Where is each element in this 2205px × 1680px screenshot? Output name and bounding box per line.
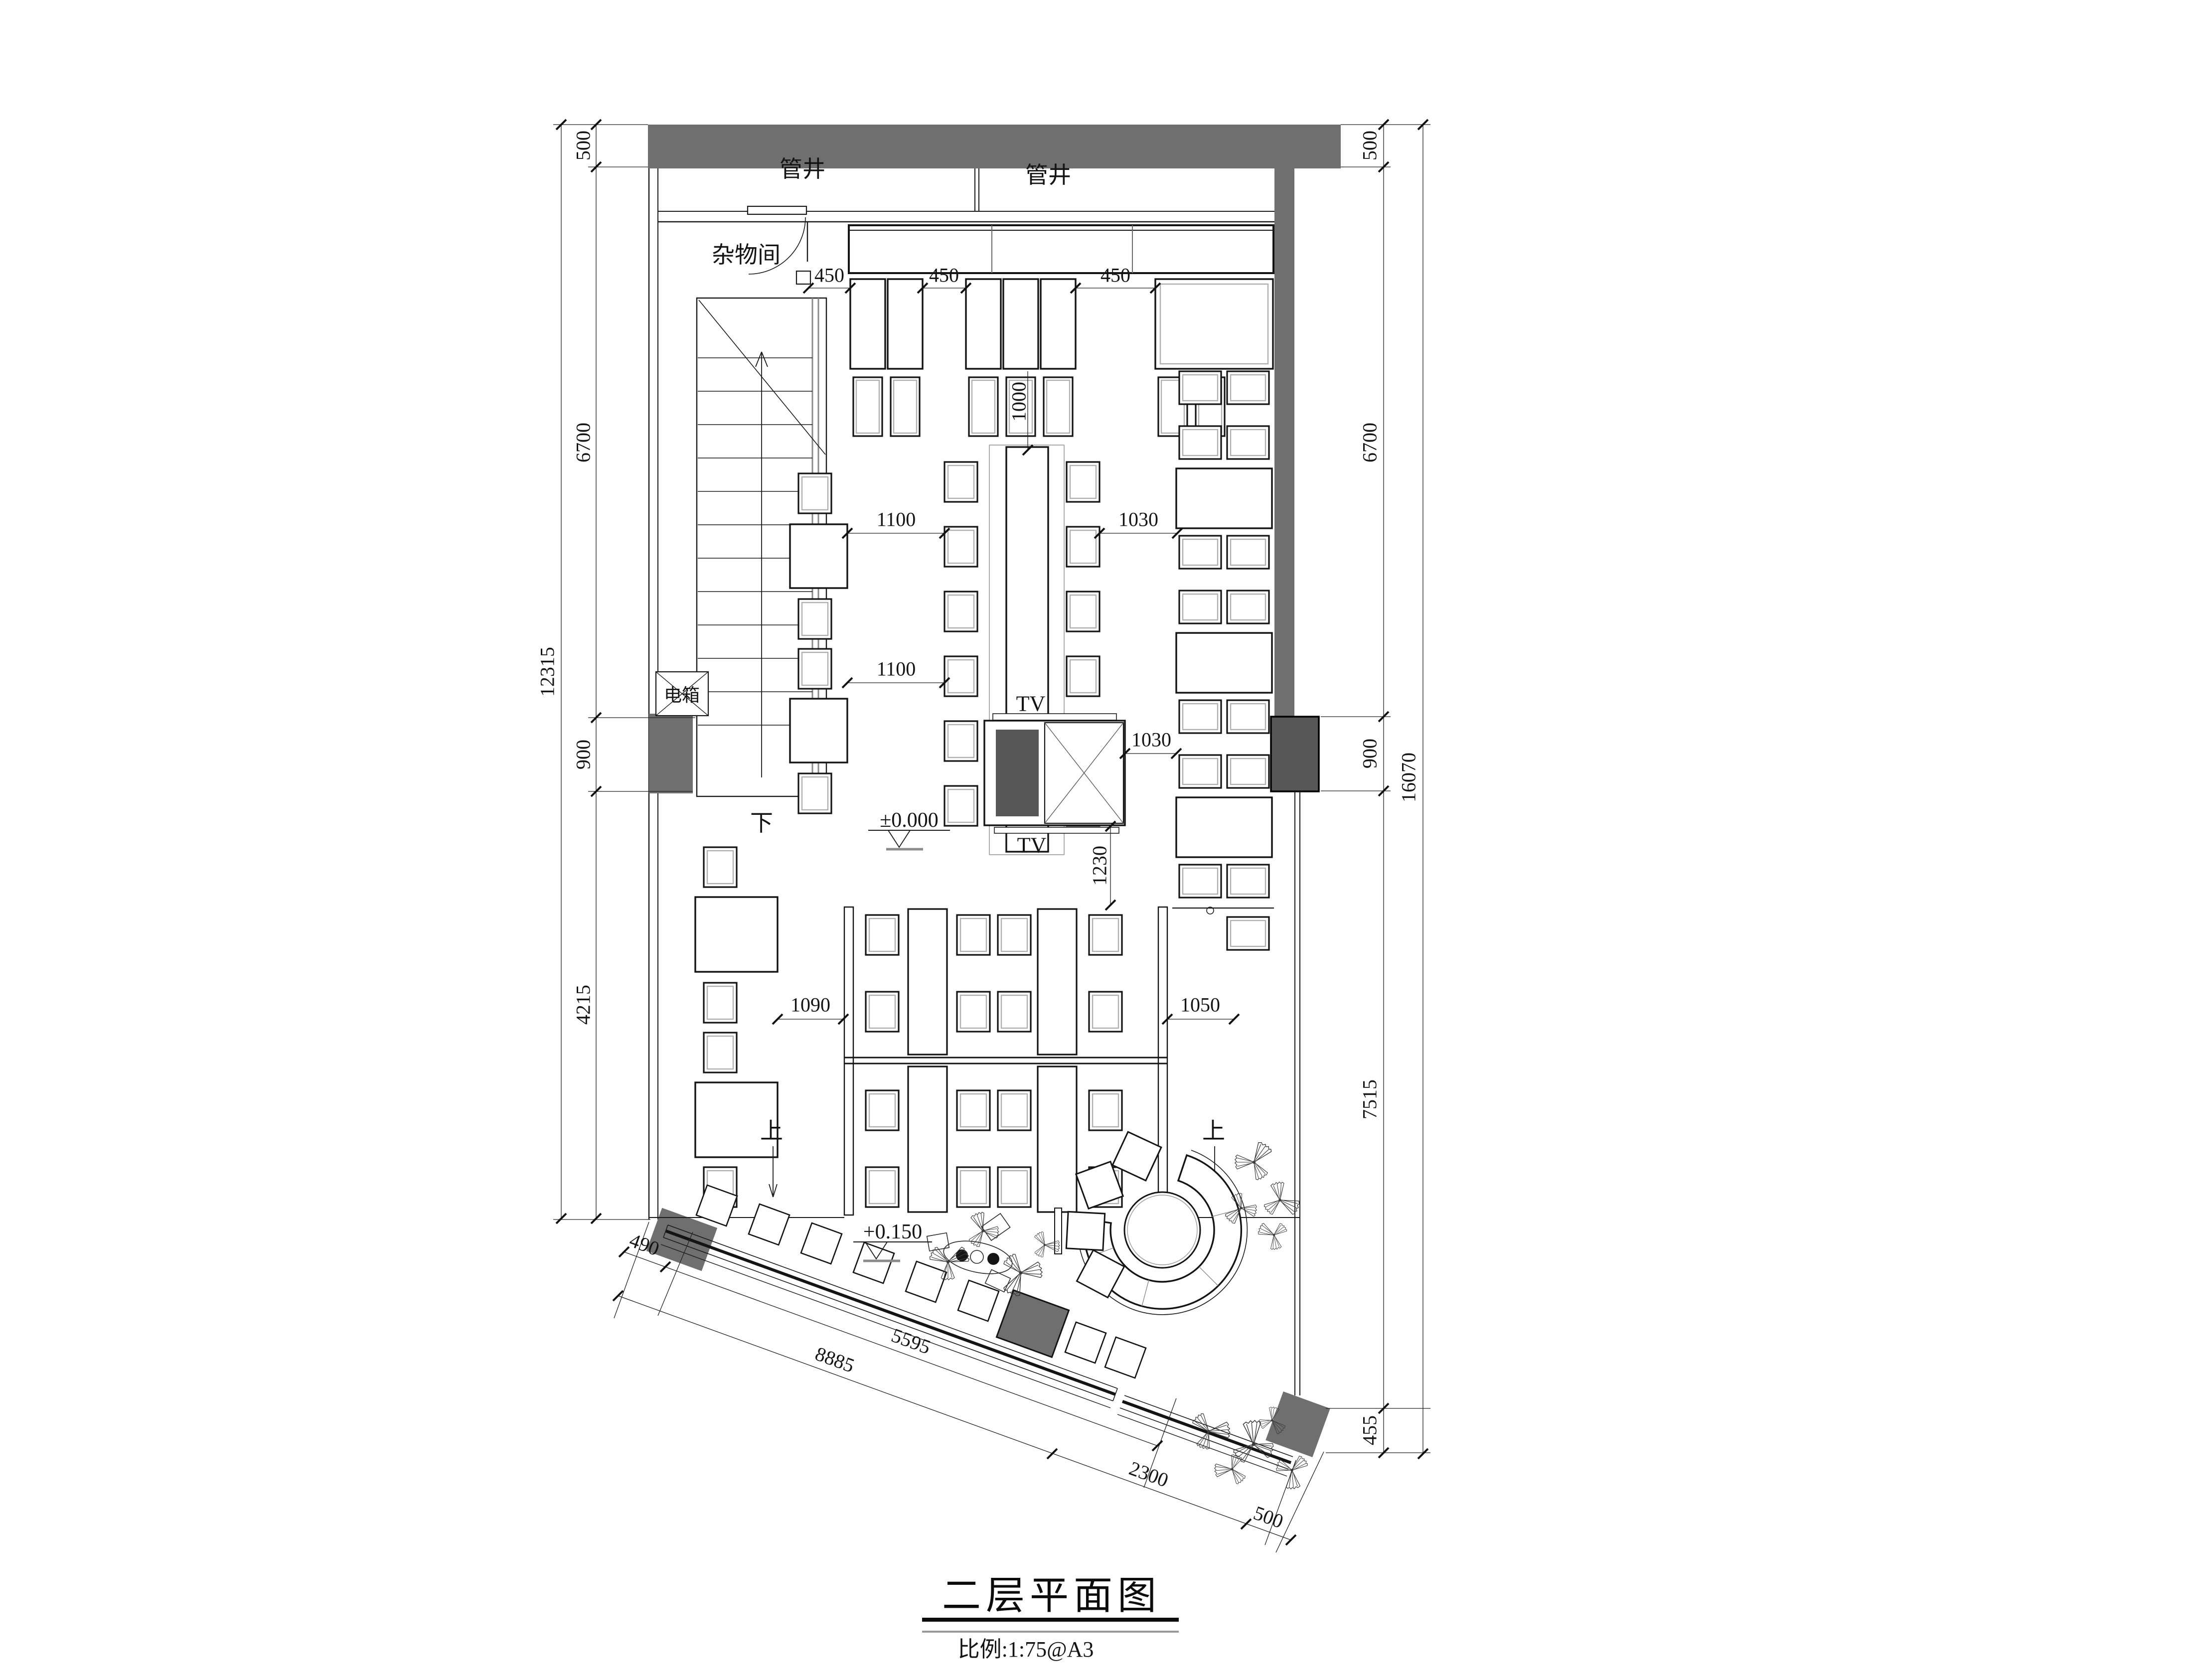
dim-left-900: 900 bbox=[572, 740, 595, 769]
dim-1090: 1090 bbox=[790, 993, 830, 1017]
dim-450-3: 450 bbox=[1101, 264, 1130, 287]
dim-left-6700: 6700 bbox=[572, 423, 595, 462]
dim-1100-1: 1100 bbox=[877, 508, 916, 531]
dim-1100-2: 1100 bbox=[877, 657, 916, 681]
tv-label-bottom: TV bbox=[1017, 833, 1047, 858]
drawing-scale-note: 比例:1:75@A3 bbox=[958, 1631, 1094, 1663]
stair-up-right-label: 上 bbox=[1202, 1113, 1225, 1146]
dim-left-500: 500 bbox=[572, 131, 595, 160]
floor-plan-drawing bbox=[0, 0, 2205, 1680]
storage-room-label: 杂物间 bbox=[712, 237, 781, 270]
dim-right-900: 900 bbox=[1358, 739, 1382, 768]
drawing-title: 二层平面图 bbox=[942, 1564, 1161, 1620]
dim-left-4215: 4215 bbox=[572, 985, 595, 1025]
dim-right-overall-16070: 16070 bbox=[1397, 753, 1420, 802]
pipe-shaft-label-1: 管井 bbox=[780, 151, 825, 184]
dim-1030-1: 1030 bbox=[1118, 508, 1158, 531]
pipe-shaft-label-2: 管井 bbox=[1025, 157, 1071, 190]
dim-right-6700: 6700 bbox=[1358, 423, 1382, 462]
dim-1230: 1230 bbox=[1088, 846, 1111, 886]
tv-column-block bbox=[984, 714, 1125, 833]
level-terrace: +0.150 bbox=[863, 1220, 922, 1244]
dim-right-7515: 7515 bbox=[1358, 1079, 1382, 1119]
dim-450-2: 450 bbox=[929, 264, 959, 287]
dim-left-overall-12315: 12315 bbox=[536, 647, 559, 697]
dim-right-455: 455 bbox=[1358, 1415, 1382, 1445]
dim-450-1: 450 bbox=[814, 264, 844, 287]
electric-box-label: 电箱 bbox=[664, 681, 700, 707]
dim-right-500: 500 bbox=[1358, 131, 1382, 160]
title-underline bbox=[922, 1620, 1179, 1632]
stair-up-left-label: 上 bbox=[760, 1113, 783, 1146]
level-main-floor: ±0.000 bbox=[880, 808, 939, 832]
dim-1030-2: 1030 bbox=[1131, 728, 1171, 752]
right-seating bbox=[1172, 371, 1274, 950]
tv-label-top: TV bbox=[1016, 691, 1046, 717]
dim-1050: 1050 bbox=[1180, 993, 1220, 1017]
dim-1000: 1000 bbox=[1007, 382, 1031, 422]
floor-plan-sheet: 管井 管井 杂物间 电箱 下 上 上 TV TV ±0.000 +0.150 5… bbox=[0, 0, 2205, 1680]
round-bench-group bbox=[1055, 1132, 1247, 1315]
stair-down-label: 下 bbox=[750, 805, 773, 838]
